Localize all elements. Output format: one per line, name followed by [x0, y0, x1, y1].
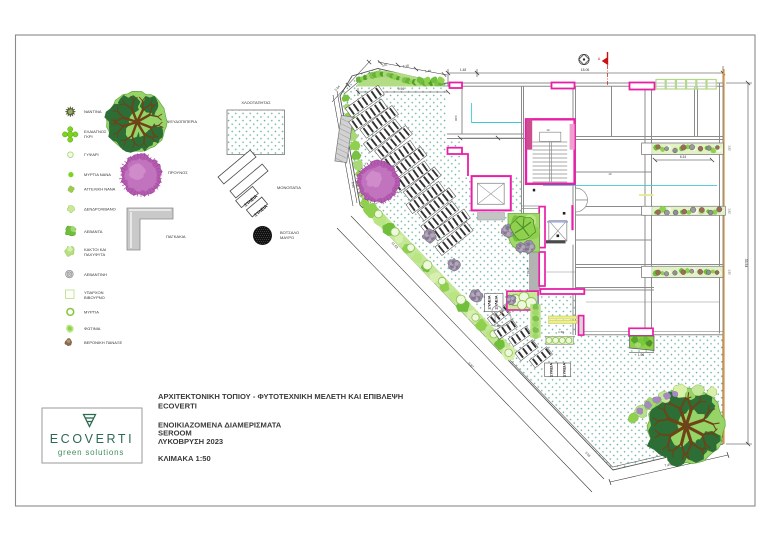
svg-text:18.06: 18.06: [581, 68, 590, 72]
svg-text:ΒΙΒΟΥΡΝΟ: ΒΙΒΟΥΡΝΟ: [84, 295, 105, 300]
svg-text:ECOVERTI: ECOVERTI: [50, 432, 134, 446]
svg-text:ΜΑΥΡΟ: ΜΑΥΡΟ: [280, 235, 294, 240]
svg-text:6.34: 6.34: [680, 155, 686, 159]
svg-text:ΒΕΡΟΝΙΚΗ ΠΑΝΑΞΕ: ΒΕΡΟΝΙΚΗ ΠΑΝΑΞΕ: [84, 340, 122, 345]
svg-text:ΠΡΟΥΝΟΣ: ΠΡΟΥΝΟΣ: [168, 170, 188, 175]
svg-text:ΛΕΒΑΝΤΑ: ΛΕΒΑΝΤΑ: [84, 229, 103, 234]
svg-text:ΞΥΛΕΙΑ: ΞΥΛΕΙΑ: [549, 363, 554, 377]
svg-text:ΠΑΓΚΑΚΙΑ: ΠΑΓΚΑΚΙΑ: [166, 234, 186, 239]
svg-text:ΝΑΝΤΙΝΑ: ΝΑΝΤΙΝΑ: [84, 109, 102, 114]
svg-text:ΞΥΛΕΙΑ: ΞΥΛΕΙΑ: [487, 295, 492, 309]
svg-text:ΛΥΚΟΒΡΥΣΗ 2023: ΛΥΚΟΒΡΥΣΗ 2023: [158, 437, 223, 446]
svg-text:1.52: 1.52: [728, 145, 732, 151]
svg-text:4.00: 4.00: [454, 115, 458, 121]
svg-text:9.96: 9.96: [398, 87, 404, 91]
svg-text:ΚΛΙΜΑΚΑ 1:50: ΚΛΙΜΑΚΑ 1:50: [158, 454, 211, 463]
svg-text:ΜΥΡΤΙΑ: ΜΥΡΤΙΑ: [84, 310, 99, 315]
svg-text:ΓΥΨΑΡΙ: ΓΥΨΑΡΙ: [84, 152, 99, 157]
svg-text:1.90: 1.90: [558, 330, 564, 334]
svg-text:ECOVERTI: ECOVERTI: [158, 402, 197, 411]
svg-text:33.54: 33.54: [744, 259, 748, 268]
svg-text:ΛΕΒΑΝΤΙΝΗ: ΛΕΒΑΝΤΙΝΗ: [84, 272, 107, 277]
svg-text:2.50: 2.50: [526, 268, 530, 274]
svg-text:ΨΕΥΔΟΠΙΠΕΡΙΑ: ΨΕΥΔΟΠΙΠΕΡΙΑ: [167, 119, 197, 124]
svg-text:1.48: 1.48: [460, 68, 466, 72]
svg-text:ΦΩΤΙΝΙΑ: ΦΩΤΙΝΙΑ: [84, 326, 101, 331]
svg-text:1.86: 1.86: [494, 324, 500, 328]
svg-text:1.96: 1.96: [638, 353, 644, 357]
svg-text:ΓΚΡΙ: ΓΚΡΙ: [84, 134, 93, 139]
svg-text:ΜΟΝΟΠΑΤΙΑ: ΜΟΝΟΠΑΤΙΑ: [277, 185, 301, 190]
svg-text:ΔΕΝΔΡΟΛΙΒΑΝΟ: ΔΕΝΔΡΟΛΙΒΑΝΟ: [84, 207, 116, 212]
svg-text:green solutions: green solutions: [58, 448, 124, 457]
svg-text:ΜΥΡΤΙΑ ΝΑΝΑ: ΜΥΡΤΙΑ ΝΑΝΑ: [84, 172, 111, 177]
svg-text:ΑΡΧΙΤΕΚΤΟΝΙΚΗ ΤΟΠΙΟΥ - ΦΥΤΟΤΕΧ: ΑΡΧΙΤΕΚΤΟΝΙΚΗ ΤΟΠΙΟΥ - ΦΥΤΟΤΕΧΝΙΚΗ ΜΕΛΕΤ…: [158, 392, 403, 401]
svg-text:ΠΑΧΥΦΥΤΑ: ΠΑΧΥΦΥΤΑ: [84, 252, 106, 257]
svg-text:ΞΥΛΕΙΑ: ΞΥΛΕΙΑ: [494, 295, 499, 309]
svg-text:ΞΥΛΕΙΑ: ΞΥΛΕΙΑ: [562, 363, 567, 377]
svg-text:1.52: 1.52: [728, 208, 732, 214]
svg-text:ΑΓΓΕΛΙΚΗ ΝΑΝΑ: ΑΓΓΕΛΙΚΗ ΝΑΝΑ: [84, 187, 116, 192]
svg-text:1.52: 1.52: [728, 269, 732, 275]
svg-text:ΧΛΟΟΤΑΠΗΤΑΣ: ΧΛΟΟΤΑΠΗΤΑΣ: [241, 100, 271, 105]
